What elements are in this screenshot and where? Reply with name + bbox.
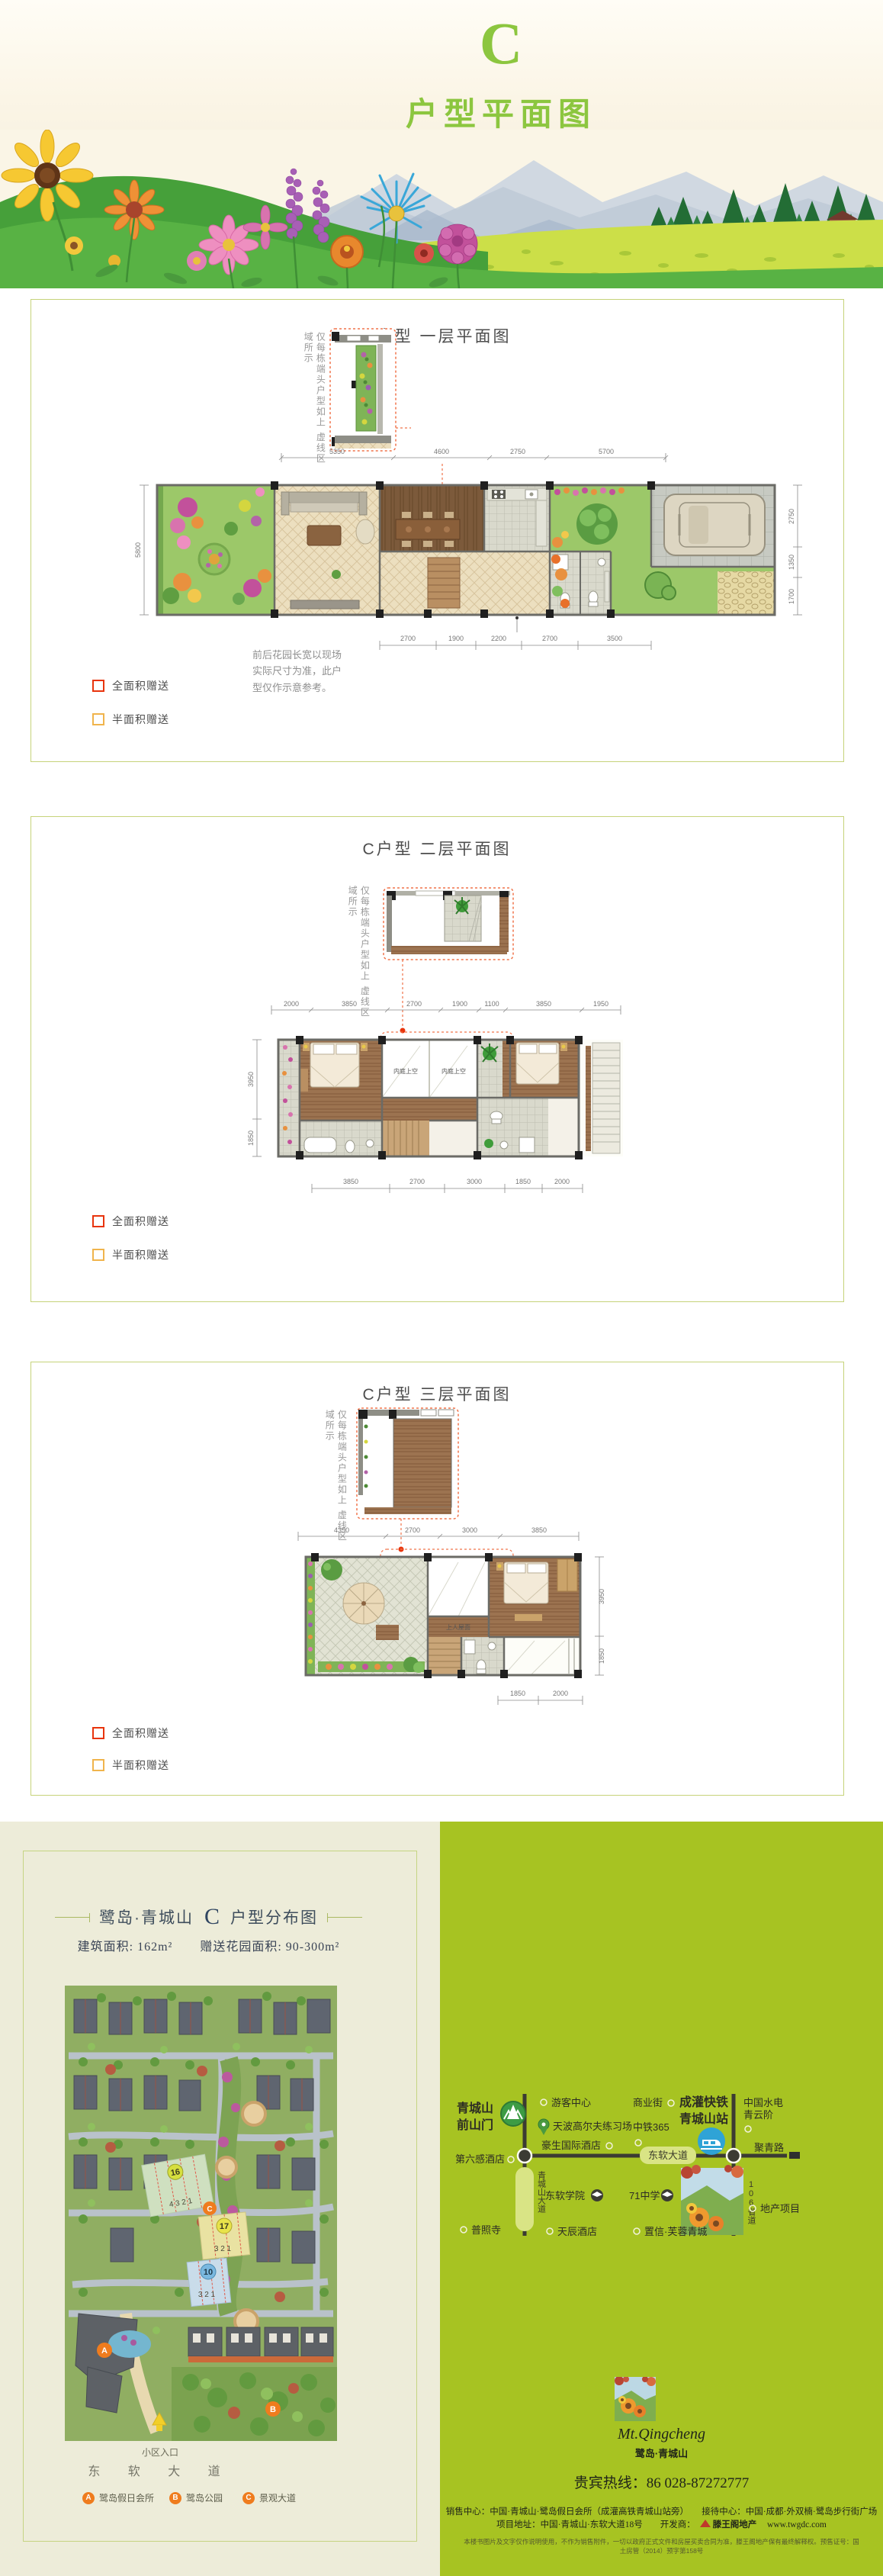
dim: 3000 — [462, 1526, 477, 1534]
stairs — [382, 1121, 429, 1156]
dim: 4350 — [334, 1526, 349, 1534]
legend-full: 全面积赠送 — [92, 678, 169, 693]
map-legend-a-label: 鹭岛假日会所 — [99, 2491, 154, 2504]
dim: 2750 — [510, 448, 525, 455]
orange-zinnia — [331, 236, 363, 268]
dim: 1350 — [788, 555, 795, 570]
block17-units: 3 2 1 — [214, 2245, 232, 2253]
dim: 3500 — [607, 635, 622, 642]
floor2-dims-top — [271, 1005, 621, 1015]
void — [428, 1557, 489, 1616]
banner-illustration — [0, 130, 883, 288]
dim: 2700 — [405, 1526, 420, 1534]
fine-print: 本楼书图片及文字仅作说明使用，不作为销售附件，一切以政府正式文件和房屋买卖合同为… — [440, 2537, 883, 2555]
svg-text:成灌快铁: 成灌快铁 — [679, 2095, 728, 2109]
legend-half-swatch — [92, 713, 104, 725]
side-balcony — [278, 1040, 300, 1156]
developer-url: www.twgdc.com — [767, 2520, 827, 2529]
svg-text:中国水电: 中国水电 — [743, 2097, 783, 2108]
svg-text:第六感酒店: 第六感酒店 — [455, 2153, 505, 2165]
outdoor-stairs — [586, 1043, 620, 1153]
developer-logo-icon — [700, 2520, 711, 2527]
dim: 3850 — [342, 1000, 357, 1008]
legend-half-label: 半面积赠送 — [112, 712, 169, 727]
svg-text:A: A — [101, 2346, 108, 2356]
svg-text:聚青路: 聚青路 — [754, 2142, 784, 2153]
legend-full-label: 全面积赠送 — [112, 1725, 169, 1741]
area-label-1: 建筑面积: — [78, 1941, 133, 1954]
border-flowers — [308, 1561, 313, 1664]
legend-half-label: 半面积赠送 — [112, 1758, 169, 1773]
distribution-letter: C — [204, 1904, 220, 1930]
dim: 2000 — [284, 1000, 299, 1008]
dim: 2000 — [554, 1178, 570, 1185]
footer-line1: 销售中心：中国·青城山·鹭岛假日会所（成灌高铁青城山站旁） 接待中心：中国·成都… — [440, 2505, 883, 2517]
dim: 5700 — [599, 448, 614, 455]
foyer — [380, 552, 550, 615]
title-rule-right — [327, 1917, 362, 1918]
legend-full-swatch — [92, 1727, 104, 1739]
block10-number: 10 — [204, 2268, 213, 2277]
block17-number: 17 — [220, 2222, 229, 2231]
area-value-1: 162m² — [137, 1941, 172, 1954]
developer-name: 滕王阁地产 — [713, 2520, 757, 2529]
dim: 2750 — [788, 509, 795, 524]
floor2-section: C户型 二层平面图 仅每栋端头户型如上 虚线区域所示 — [31, 816, 844, 1302]
school-icon — [591, 2189, 603, 2201]
poi-dot — [635, 2140, 641, 2146]
distribution-suffix: 户型分布图 — [230, 1905, 318, 1928]
void-label-1: 内庭上空 — [393, 1067, 418, 1075]
svg-text:置信·芙蓉青城: 置信·芙蓉青城 — [644, 2226, 707, 2237]
legend-half-swatch — [92, 1249, 104, 1261]
legend-half: 半面积赠送 — [92, 712, 169, 727]
dim: 2700 — [406, 1000, 422, 1008]
dim: 2200 — [491, 635, 506, 642]
svg-text:中铁365: 中铁365 — [633, 2121, 669, 2133]
distribution-title: 鹭岛·青城山 C 户型分布图 — [0, 1904, 417, 1930]
dim: 1850 — [598, 1648, 605, 1664]
legend-full: 全面积赠送 — [92, 1725, 169, 1741]
roof-label: 上人屋面 — [446, 1624, 470, 1631]
dim: 1100 — [484, 1000, 499, 1008]
aster-center — [389, 206, 404, 221]
school-icon — [661, 2189, 673, 2201]
poi-dot — [745, 2126, 751, 2132]
svg-text:地产项目: 地产项目 — [760, 2203, 800, 2214]
floor1-section: C户型 一层平面图 仅每栋端头户型如上 虚线区域所示 — [31, 299, 844, 762]
red-flower — [414, 243, 434, 263]
svg-text:东软大道: 东软大道 — [648, 2150, 688, 2161]
svg-text:前山门: 前山门 — [457, 2118, 493, 2132]
dim: 3950 — [247, 1072, 255, 1087]
distribution-brand: 鹭岛·青城山 — [99, 1905, 194, 1928]
dim: 3850 — [343, 1178, 358, 1185]
entrance-label: 小区入口 — [99, 2446, 221, 2459]
stairs — [428, 558, 460, 608]
header: C 户型平面图 — [0, 0, 883, 141]
dim: 2700 — [409, 1178, 425, 1185]
svg-text:青云阶: 青云阶 — [743, 2109, 773, 2121]
magenta-dahlia — [438, 224, 477, 264]
dim: 1850 — [247, 1130, 255, 1146]
road-label: 东 软 大 道 — [46, 2461, 275, 2479]
poi-dot — [461, 2227, 467, 2233]
floor1-end-unit-plan — [330, 329, 411, 451]
map-legend-a: A 鹭岛假日会所 — [82, 2491, 154, 2504]
floor1-note: 前后花园长宽以现场实际尺寸为准，此户型仅作示意参考。 — [252, 647, 350, 696]
dim: 1900 — [452, 1000, 467, 1008]
svg-text:普照寺: 普照寺 — [471, 2224, 501, 2236]
small-yellow-flower — [65, 236, 83, 255]
terrace-tree — [321, 1559, 342, 1581]
road-end-cap — [789, 2152, 800, 2159]
gate-icon — [501, 2102, 525, 2126]
car — [664, 494, 765, 555]
brochure-page: C 户型平面图 — [0, 0, 883, 2576]
distribution-panel: 鹭岛·青城山 C 户型分布图 建筑面积: 162m² 赠送花园面积: 90-30… — [0, 1822, 440, 2576]
block-17: 17 3 2 1 — [198, 2212, 250, 2259]
poi-dot — [668, 2100, 674, 2106]
location-panel: 东软大道 青城山大道 106省道 青城山 前山门 第六感酒店 游客中心 — [440, 1822, 883, 2576]
dim: 2000 — [553, 1690, 568, 1697]
dim: 2700 — [400, 635, 416, 642]
golf-pin-icon — [538, 2119, 549, 2135]
intersection-west — [518, 2149, 531, 2163]
logo-image — [615, 2377, 656, 2421]
block-16: 16 4 3 2 1 — [142, 2154, 214, 2217]
dim: 4600 — [434, 448, 449, 455]
logo-script: Mt.Qingcheng — [440, 2426, 883, 2443]
floor1-main-plan — [157, 481, 775, 632]
map-legend-b-label: 鹭岛公园 — [186, 2491, 223, 2504]
dim: 1900 — [448, 635, 464, 642]
poi-dot — [541, 2099, 547, 2105]
intersection-east — [727, 2149, 740, 2163]
map-legend-b: B 鹭岛公园 — [169, 2491, 223, 2504]
dining-furniture — [396, 512, 460, 547]
svg-text:天波高尔夫练习场: 天波高尔夫练习场 — [553, 2121, 632, 2132]
block10-units: 3 2 1 — [198, 2291, 216, 2299]
poi-dot — [606, 2143, 612, 2149]
project-photo — [681, 2165, 743, 2235]
page-title-letter: C — [310, 14, 692, 73]
block16-number: 16 — [170, 2167, 181, 2178]
dim: 3000 — [467, 1178, 482, 1185]
legend-half: 半面积赠送 — [92, 1758, 169, 1773]
area-value-2: 90-300m² — [286, 1941, 340, 1954]
map-legend-c-label: 景观大道 — [259, 2491, 296, 2504]
dim: 3950 — [598, 1589, 605, 1604]
legend-full-swatch — [92, 1215, 104, 1227]
dim: 3850 — [531, 1526, 547, 1534]
legend-full-swatch — [92, 680, 104, 692]
svg-text:71中学: 71中学 — [629, 2190, 660, 2201]
void-label-2: 内庭上空 — [441, 1067, 466, 1075]
svg-text:B: B — [270, 2405, 276, 2414]
block-10: 10 3 2 1 — [187, 2258, 231, 2306]
legend-full-label: 全面积赠送 — [112, 678, 169, 693]
svg-text:豪生国际酒店: 豪生国际酒店 — [541, 2140, 601, 2151]
floor3-end-unit-plan — [357, 1408, 458, 1519]
dim: 1850 — [510, 1690, 525, 1697]
logo-cn: 鹭岛·青城山 — [440, 2446, 883, 2460]
svg-text:东软学院: 东软学院 — [545, 2190, 585, 2201]
title-rule-left — [55, 1917, 90, 1918]
dim: 5350 — [329, 448, 345, 455]
poi-dot — [634, 2228, 640, 2234]
map-legend-c: C 景观大道 — [242, 2491, 296, 2504]
svg-text:C: C — [207, 2205, 212, 2214]
footer-line2: 项目地址：中国·青城山·东软大道18号 开发商：滕王阁地产 www.twgdc.… — [440, 2518, 883, 2530]
cobble-patio — [718, 571, 775, 615]
dim: 1950 — [593, 1000, 608, 1008]
legend-full: 全面积赠送 — [92, 1214, 169, 1229]
poi-dot — [750, 2205, 756, 2211]
area-label-2: 赠送花园面积: — [200, 1941, 281, 1954]
area-info: 建筑面积: 162m² 赠送花园面积: 90-300m² — [0, 1936, 417, 1954]
floor2-main-plan — [278, 1036, 623, 1159]
floor3-main-plan — [306, 1553, 582, 1678]
poi-dot — [547, 2228, 553, 2234]
svg-text:游客中心: 游客中心 — [551, 2097, 591, 2108]
floor3-section: C户型 三层平面图 仅每栋端头户型如上 虚线区域所示 — [31, 1362, 844, 1796]
svg-text:商业街: 商业街 — [633, 2097, 663, 2108]
svg-text:青城山站: 青城山站 — [679, 2111, 728, 2126]
transit-map: 东软大道 青城山大道 106省道 青城山 前山门 第六感酒店 游客中心 — [440, 2086, 883, 2246]
south-park — [172, 2367, 337, 2441]
page-title: 户型平面图 — [310, 88, 692, 135]
poi-dot — [508, 2156, 514, 2163]
site-plan-map: 16 4 3 2 1 C 17 3 2 1 10 — [65, 1986, 337, 2441]
legend-half-label: 半面积赠送 — [112, 1247, 169, 1262]
legend-full-label: 全面积赠送 — [112, 1214, 169, 1229]
dim: 1850 — [515, 1178, 531, 1185]
svg-text:天辰酒店: 天辰酒店 — [557, 2226, 597, 2237]
legend-half: 半面积赠送 — [92, 1247, 169, 1262]
dim: 2700 — [542, 635, 557, 642]
svg-text:青城山: 青城山 — [457, 2101, 493, 2115]
dim: 3850 — [536, 1000, 551, 1008]
legend-half-swatch — [92, 1759, 104, 1771]
dim: 5800 — [134, 542, 142, 558]
hotline: 贵宾热线：86 028-87272777 — [440, 2471, 883, 2492]
train-icon — [698, 2127, 725, 2155]
floor2-end-unit-plan — [384, 888, 513, 960]
dim: 1700 — [788, 589, 795, 604]
